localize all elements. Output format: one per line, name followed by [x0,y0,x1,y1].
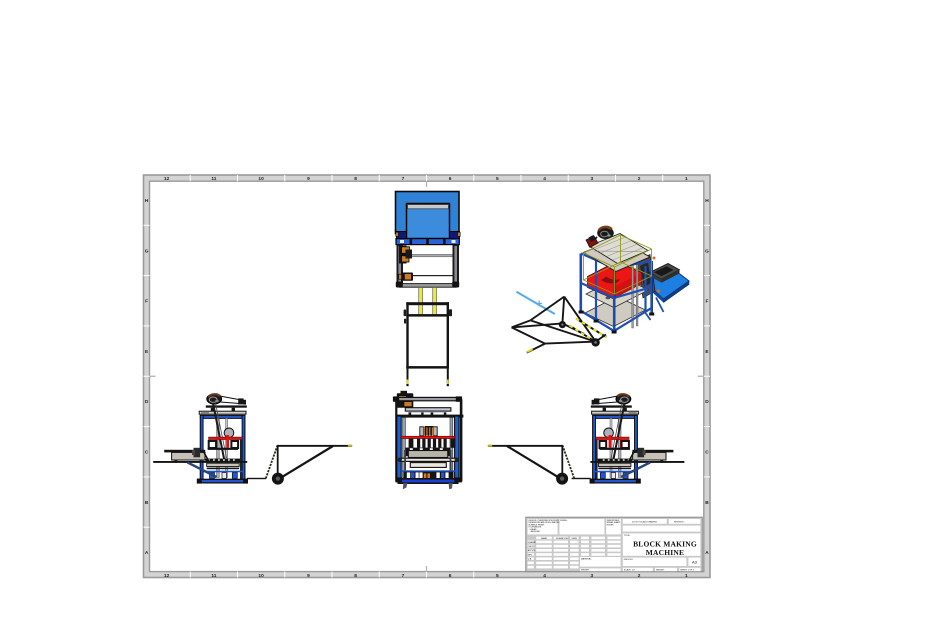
svg-text:3: 3 [590,176,593,182]
svg-text:A: A [705,550,709,556]
svg-text:H: H [145,198,149,204]
svg-text:DATE: DATE [572,537,578,540]
svg-text:11: 11 [211,573,216,579]
svg-text:ANGULAR:: ANGULAR: [531,530,541,533]
svg-text:DO NOT SCALE DRAWING: DO NOT SCALE DRAWING [632,520,657,523]
svg-text:11: 11 [211,176,216,182]
svg-text:WEIGHT:: WEIGHT: [656,569,665,571]
svg-text:2: 2 [638,176,641,182]
svg-text:DWG NO.: DWG NO. [624,559,634,561]
svg-text:10: 10 [258,573,264,579]
svg-text:4: 4 [543,176,546,182]
svg-text:G: G [705,248,709,254]
svg-text:12: 12 [164,176,170,182]
svg-text:DRAWN: DRAWN [528,541,536,544]
svg-text:MFG: MFG [528,554,533,556]
svg-text:MATERIAL:: MATERIAL: [581,557,592,560]
svg-text:9: 9 [307,176,310,182]
svg-text:D: D [145,399,149,405]
svg-text:5: 5 [496,573,499,579]
svg-text:6: 6 [449,176,452,182]
svg-text:5: 5 [496,176,499,182]
svg-text:SIGNATURE: SIGNATURE [556,537,569,540]
svg-text:C: C [145,450,149,456]
svg-text:10: 10 [258,176,264,182]
svg-text:H: H [705,198,709,204]
svg-text:1: 1 [685,573,688,579]
svg-text:CHK'D: CHK'D [528,546,535,548]
svg-text:8: 8 [354,176,357,182]
svg-text:7: 7 [402,176,405,182]
svg-text:C: C [705,450,709,456]
svg-text:SHEET 1 OF 1: SHEET 1 OF 1 [680,569,695,571]
svg-text:D: D [705,399,709,405]
svg-text:3: 3 [590,573,593,579]
svg-text:EDGES: EDGES [607,524,614,526]
svg-text:TITLE:: TITLE: [624,535,631,537]
svg-text:7: 7 [402,573,405,579]
svg-text:A3: A3 [692,559,698,564]
svg-text:4: 4 [543,573,546,579]
svg-text:B: B [705,500,709,506]
svg-text:FINISH:: FINISH: [560,520,568,522]
svg-text:9: 9 [307,573,310,579]
svg-text:G: G [145,248,149,254]
svg-text:SCALE: 1:8: SCALE: 1:8 [624,568,636,571]
svg-text:F: F [706,299,709,305]
svg-text:F: F [145,299,148,305]
svg-text:12: 12 [164,573,170,579]
svg-text:MACHINE: MACHINE [646,548,684,557]
svg-text:8: 8 [354,573,357,579]
svg-text:NAME: NAME [541,537,548,540]
svg-text:1: 1 [685,176,688,182]
svg-text:2: 2 [638,573,641,579]
svg-text:B: B [145,500,149,506]
svg-text:APPV'D: APPV'D [528,549,536,552]
svg-text:A: A [145,550,149,556]
svg-text:6: 6 [449,573,452,579]
svg-text:REVISION: REVISION [674,521,684,523]
svg-text:WEIGHT:: WEIGHT: [581,570,590,572]
